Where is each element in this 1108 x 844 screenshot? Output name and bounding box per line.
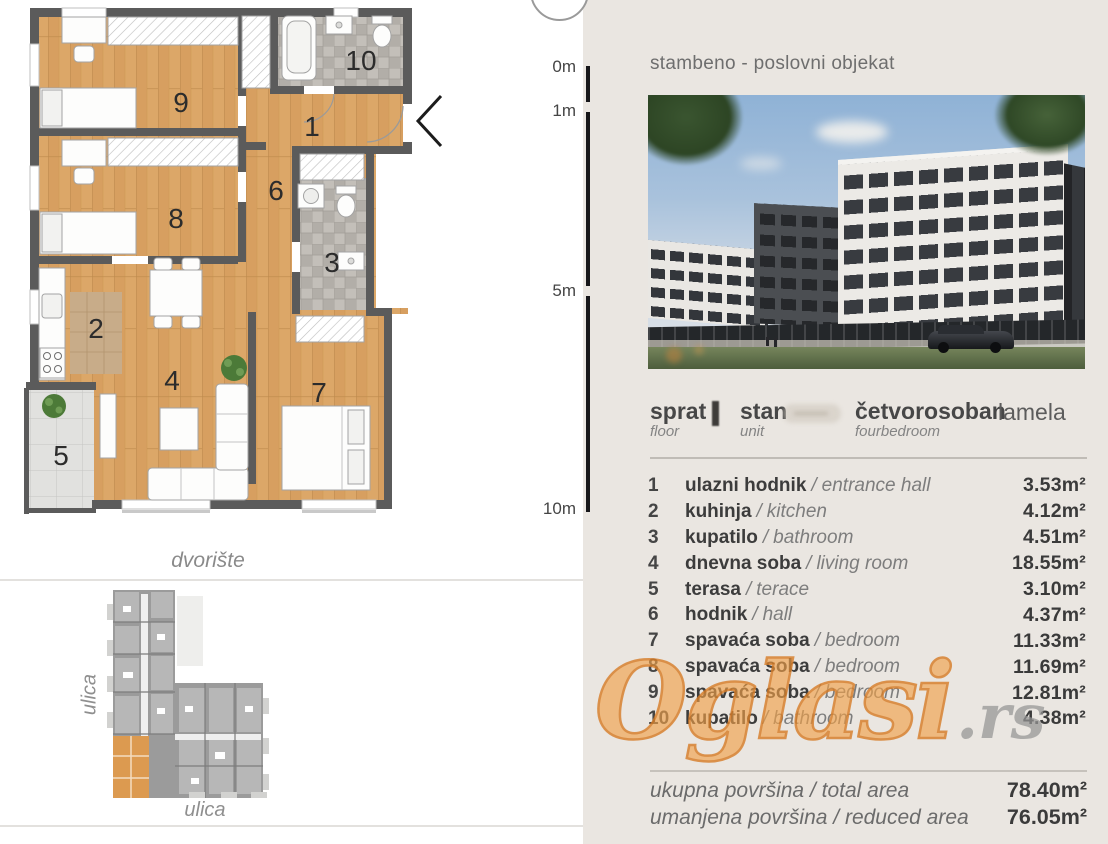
- room-row-number: 5: [648, 579, 685, 601]
- room-row: 2 kuhinja/kitchen 4.12m²: [648, 499, 1086, 525]
- cloud: [816, 121, 888, 143]
- grass: [648, 347, 1085, 369]
- ruler-mark-10m: 10m: [534, 499, 576, 519]
- watermark-rs: .rs: [956, 680, 1045, 753]
- total-area-label: ukupna površina / total area: [650, 779, 909, 803]
- apartment-floor-plan: 1 2 3 4 5 6 7 8 9 10: [4, 2, 456, 544]
- room-number-3: 3: [324, 247, 340, 278]
- divider: [650, 770, 1087, 772]
- room-number-6: 6: [268, 175, 284, 206]
- oglasi-watermark: Oglasi.rs: [595, 648, 1046, 754]
- street-label-left: ulica: [79, 663, 102, 727]
- apartment-type-label-en: fourbedroom: [855, 424, 1006, 440]
- divider: [0, 825, 583, 827]
- room-row: 6 hodnik/hall 4.37m²: [648, 602, 1086, 628]
- car-wheel: [990, 342, 1001, 353]
- room-row-area: 4.37m²: [1023, 604, 1086, 627]
- highlighted-unit: [113, 736, 149, 798]
- reduced-area-label: umanjena površina / reduced area: [650, 806, 969, 830]
- watermark-oglasi: Oglasi: [595, 638, 952, 763]
- room-row-name: ulazni hodnik/entrance hall: [685, 475, 1023, 497]
- building-photo: [648, 95, 1085, 369]
- room-row: 1 ulazni hodnik/entrance hall 3.53m²: [648, 473, 1086, 499]
- scale-ruler-line: [586, 112, 590, 286]
- room-number-4: 4: [164, 365, 180, 396]
- room-number-7: 7: [311, 377, 327, 408]
- leaf-bokeh: [666, 347, 682, 363]
- floor-number-redacted: [712, 401, 719, 426]
- total-area-row: ukupna površina / total area 78.40m²: [650, 777, 1087, 804]
- tree-right: [939, 95, 1085, 219]
- area-totals: ukupna površina / total area 78.40m² uma…: [650, 777, 1087, 831]
- room-row-area: 3.53m²: [1023, 474, 1086, 497]
- ruler-mark-0m: 0m: [534, 57, 576, 77]
- room-number-5: 5: [53, 440, 69, 471]
- room-row-area: 4.12m²: [1023, 500, 1086, 523]
- floor-label: sprat: [650, 398, 706, 424]
- building-site-plan: [105, 588, 300, 800]
- room-row-area: 18.55m²: [1012, 552, 1086, 575]
- ruler-mark-5m: 5m: [534, 281, 576, 301]
- room-row-number: 6: [648, 604, 685, 626]
- room-number-1: 1: [304, 111, 320, 142]
- street-label-bottom: ulica: [140, 799, 270, 822]
- listing-screenshot: 1 2 3 4 5 6 7 8 9 10 dvorište: [0, 0, 1108, 844]
- unit-number-redacted: [783, 404, 841, 423]
- courtyard-label: dvorište: [0, 549, 416, 573]
- room-row: 5 terasa/terace 3.10m²: [648, 577, 1086, 603]
- car-wheel: [938, 342, 949, 353]
- chevron-left-icon[interactable]: [410, 90, 448, 152]
- pedestrian: [774, 338, 777, 347]
- room-row-name: kuhinja/kitchen: [685, 501, 1023, 523]
- room-row-number: 3: [648, 527, 685, 549]
- room-row-number: 2: [648, 501, 685, 523]
- ruler-mark-1m: 1m: [534, 101, 576, 121]
- tree-left-lower: [648, 155, 728, 305]
- divider: [0, 579, 583, 581]
- leaf-bokeh: [694, 345, 704, 355]
- unit-label: stan: [740, 398, 787, 424]
- room-row-name: dnevna soba/living room: [685, 553, 1012, 575]
- scale-ruler-line: [586, 296, 590, 512]
- room-row-name: kupatilo/bathroom: [685, 527, 1023, 549]
- pedestrian: [766, 337, 769, 346]
- floor-label-en: floor: [650, 424, 706, 440]
- lamela-label: lamela: [998, 399, 1066, 425]
- apartment-type-info: četvorosoban fourbedroom: [855, 398, 1006, 440]
- page-indicator-circle: [530, 0, 589, 21]
- room-row-area: 4.51m²: [1023, 526, 1086, 549]
- room-row-name: hodnik/hall: [685, 604, 1023, 626]
- unit-label-en: unit: [740, 424, 787, 440]
- room-number-8: 8: [168, 203, 184, 234]
- room-number-2: 2: [88, 313, 104, 344]
- room-number-10: 10: [345, 45, 376, 76]
- room-row-number: 1: [648, 475, 685, 497]
- divider: [650, 457, 1087, 459]
- room-number-9: 9: [173, 87, 189, 118]
- details-panel: stambeno - poslovni objekat: [583, 0, 1108, 844]
- unit-info: stan unit: [740, 398, 787, 440]
- apartment-type-label: četvorosoban: [855, 398, 1006, 424]
- car: [928, 331, 1014, 349]
- floor-info: sprat floor: [650, 398, 706, 440]
- room-row-number: 4: [648, 553, 685, 575]
- reduced-area-row: umanjena površina / reduced area 76.05m²: [650, 804, 1087, 831]
- room-row: 3 kupatilo/bathroom 4.51m²: [648, 525, 1086, 551]
- room-row: 4 dnevna soba/living room 18.55m²: [648, 551, 1086, 577]
- reduced-area-value: 76.05m²: [1007, 805, 1087, 830]
- unit-info-row: sprat floor stan unit četvorosoban fourb…: [650, 398, 1087, 450]
- building-type-title: stambeno - poslovni objekat: [650, 53, 895, 75]
- room-row-name: terasa/terace: [685, 579, 1023, 601]
- room-row-area: 3.10m²: [1023, 578, 1086, 601]
- total-area-value: 78.40m²: [1007, 778, 1087, 803]
- scale-ruler-line: [586, 66, 590, 102]
